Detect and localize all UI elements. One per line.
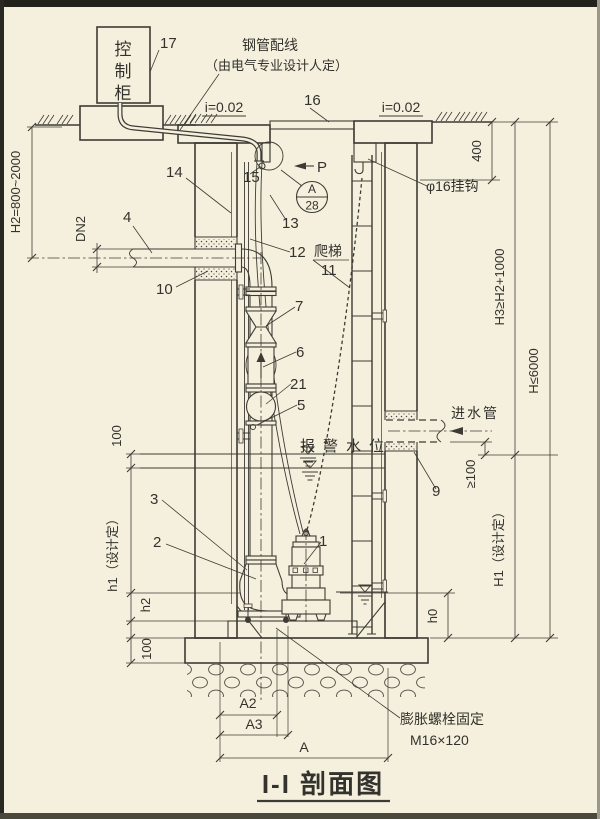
conduit-note-2: （由电气专业设计人定） bbox=[205, 58, 348, 73]
dim-100-lower: 100 bbox=[139, 638, 154, 660]
anchor-note-2: M16×120 bbox=[410, 732, 469, 748]
ref-discharge-elbow: 2 bbox=[153, 534, 161, 551]
scan-edge-left bbox=[0, 0, 4, 819]
detail-letter: A bbox=[308, 182, 316, 196]
dim-h0: h0 bbox=[425, 609, 440, 623]
ref-gate-valve: 7 bbox=[295, 298, 303, 315]
dim-h1-right: H1（设计定） bbox=[491, 505, 506, 587]
outlet-sleeve bbox=[194, 237, 238, 280]
dim-a3: A3 bbox=[245, 716, 262, 732]
dim-dn2: DN2 bbox=[73, 216, 88, 242]
dim-h3: H3≥H2+1000 bbox=[492, 249, 507, 326]
dim-h-total: H≤6000 bbox=[526, 348, 541, 393]
slope-left: i=0.02 bbox=[205, 99, 244, 115]
hook-label: φ16挂钩 bbox=[426, 178, 479, 194]
drawing-title: I-I 剖面图 bbox=[262, 769, 384, 799]
ref-check-valve: 6 bbox=[296, 344, 304, 361]
scan-edge-bottom bbox=[0, 813, 600, 819]
ref-pump: 1 bbox=[319, 533, 327, 550]
section-drawing: H2=800~2000 DN2 100 h1（设计定） h2 100 400 H… bbox=[0, 0, 600, 819]
cabinet-char-2: 制 bbox=[115, 62, 132, 81]
ref-outlet-sleeve: 10 bbox=[156, 281, 173, 298]
slope-right: i=0.02 bbox=[382, 99, 421, 115]
ref-coupling: 3 bbox=[150, 491, 158, 508]
alarm-level-label: 报警水位 bbox=[300, 438, 392, 455]
dim-h2-left: H2=800~2000 bbox=[8, 151, 23, 233]
anchor-bolt-left bbox=[245, 617, 251, 623]
ref-inlet-sleeve: 9 bbox=[432, 483, 440, 500]
ref-ladder: 11 bbox=[321, 262, 337, 279]
cabinet-char-1: 控 bbox=[115, 40, 132, 59]
cabinet-char-3: 柜 bbox=[115, 84, 132, 103]
ref-flex-joint: 21 bbox=[290, 376, 307, 393]
conduit-note-1: 钢管配线 bbox=[242, 37, 298, 53]
detail-sheet: 28 bbox=[305, 199, 319, 213]
ref-cable: 13 bbox=[282, 215, 299, 232]
scanned-drawing-page: H2=800~2000 DN2 100 h1（设计定） h2 100 400 H… bbox=[0, 0, 600, 819]
ref-guide-rail: 12 bbox=[289, 244, 306, 261]
inlet-pipe-label: 进水管 bbox=[451, 405, 499, 421]
ref-riser-pipe: 5 bbox=[297, 397, 305, 414]
ref-outlet-pipe: 4 bbox=[123, 209, 131, 226]
dim-400: 400 bbox=[469, 140, 484, 162]
vent-label: P bbox=[317, 159, 327, 176]
dim-ge100: ≥100 bbox=[463, 460, 478, 489]
anchor-bolt-right bbox=[283, 617, 289, 623]
ladder-label: 爬梯 bbox=[314, 243, 342, 259]
scan-edge-top bbox=[0, 0, 600, 7]
gravel-bed bbox=[187, 664, 425, 697]
title-block: I-I 剖面图 bbox=[257, 769, 390, 801]
ref-conduit-outlet: 15 bbox=[243, 169, 260, 186]
dim-h1-left: h1（设计定） bbox=[105, 512, 120, 591]
dim-100-upper: 100 bbox=[109, 425, 124, 447]
opening-lip bbox=[262, 143, 270, 162]
anchor-note-1: 膨胀螺栓固定 bbox=[400, 711, 484, 727]
ref-cabinet: 17 bbox=[160, 35, 177, 52]
dim-h2-small: h2 bbox=[138, 598, 153, 612]
dim-a2: A2 bbox=[239, 695, 256, 711]
ref-liner: 14 bbox=[166, 164, 183, 181]
ref-cover: 16 bbox=[304, 92, 321, 109]
dim-a: A bbox=[299, 739, 309, 755]
